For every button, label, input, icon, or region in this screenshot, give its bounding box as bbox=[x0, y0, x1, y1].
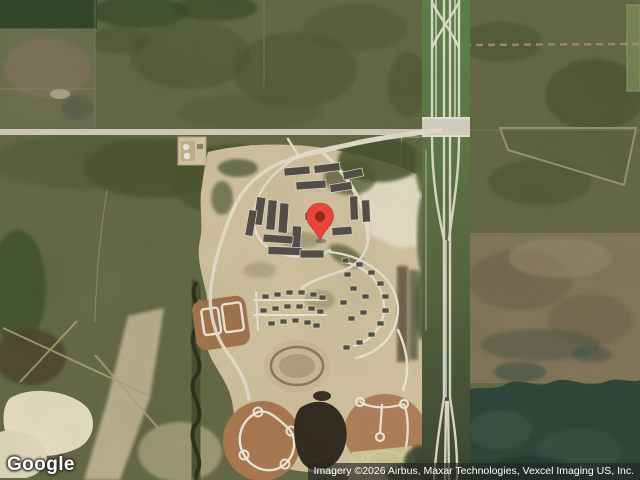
imagery-attribution: Imagery ©2026 Airbus, Maxar Technologies… bbox=[308, 463, 640, 480]
map-viewport[interactable]: Google Imagery ©2026 Airbus, Maxar Techn… bbox=[0, 0, 640, 480]
pin-dot bbox=[315, 211, 325, 221]
google-logo[interactable]: Google bbox=[7, 454, 75, 476]
satellite-map[interactable] bbox=[0, 0, 640, 480]
